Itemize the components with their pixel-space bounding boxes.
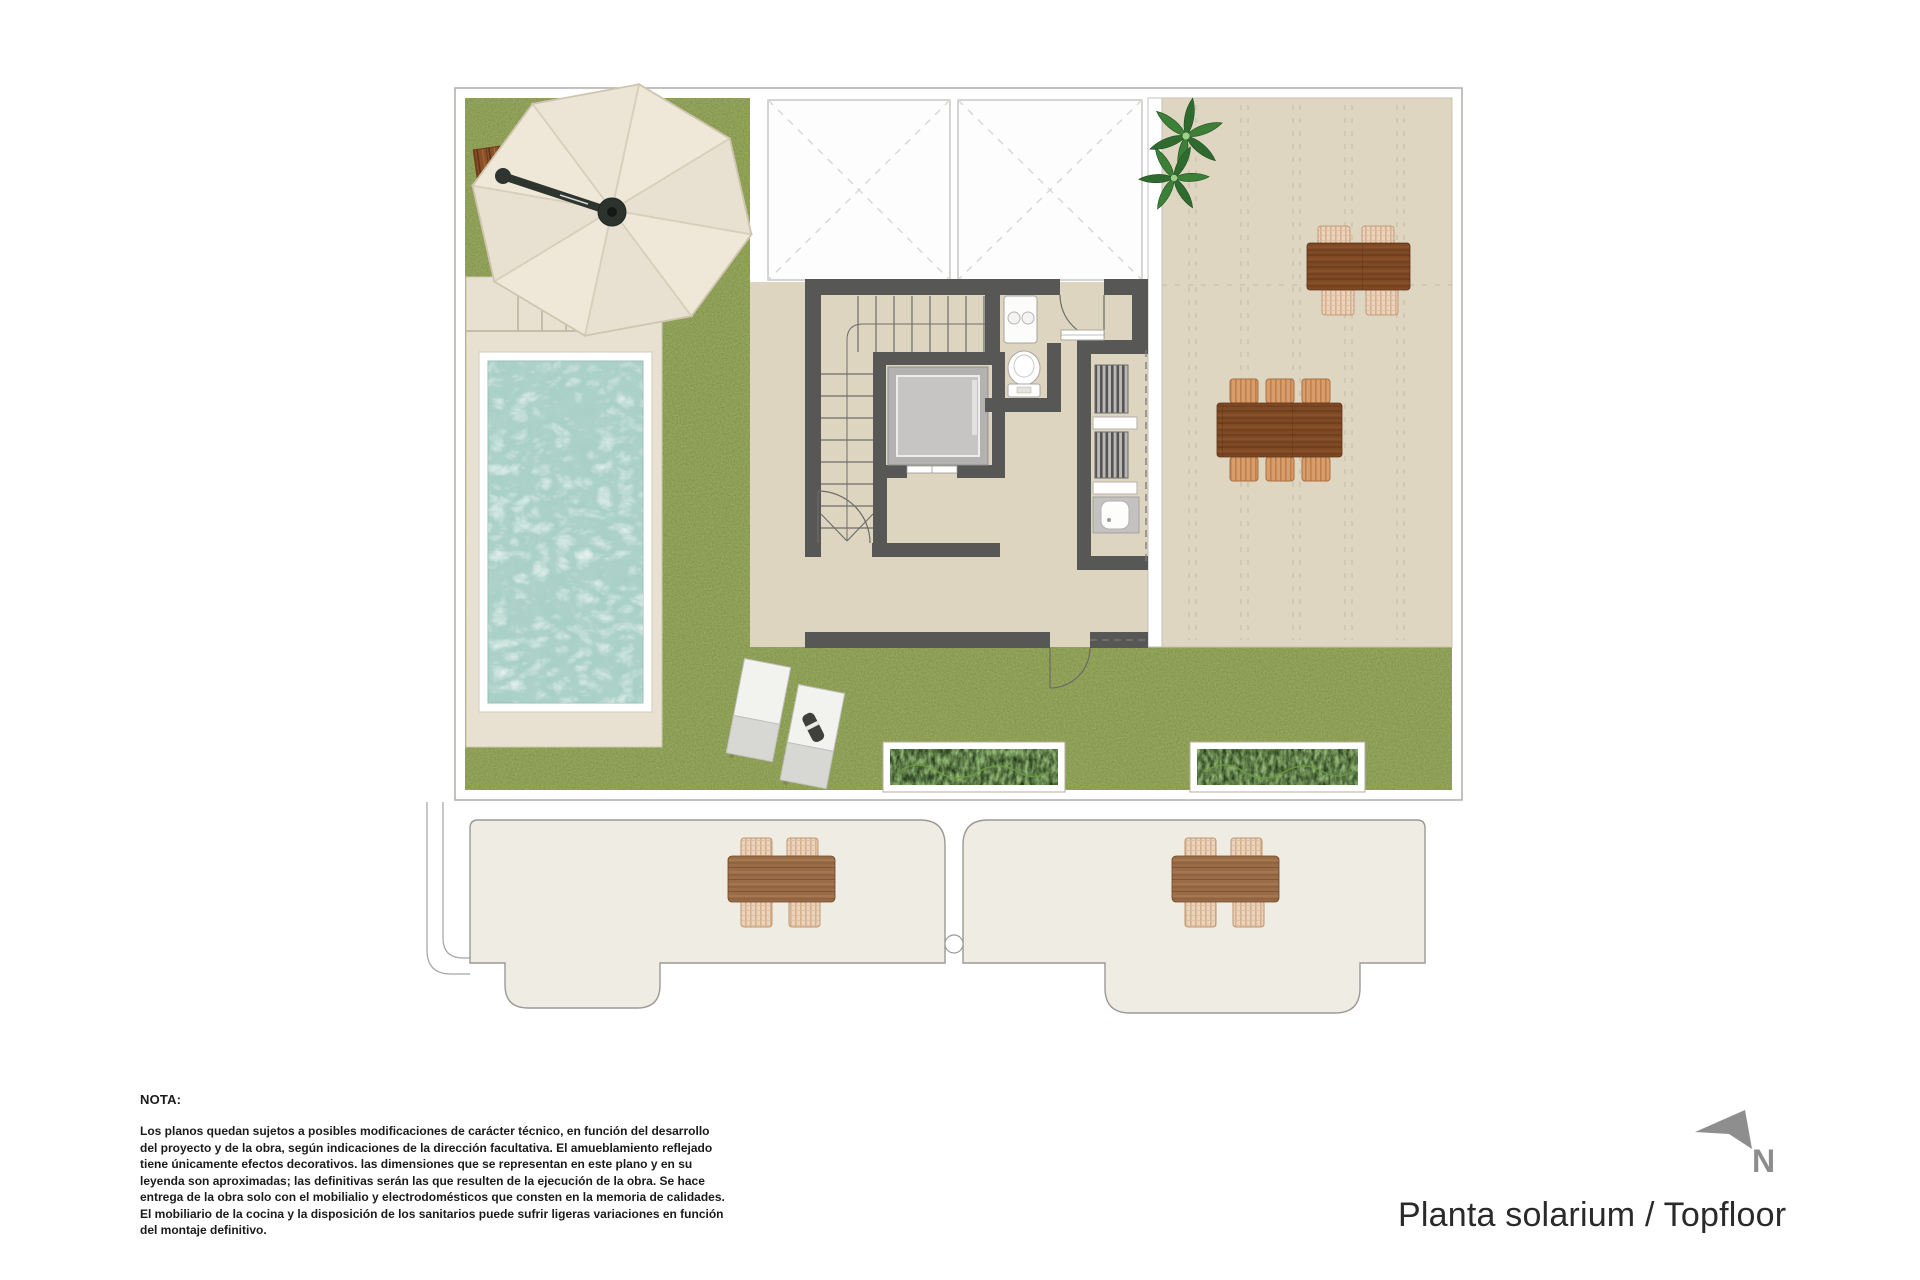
louver-unit-2: [1095, 432, 1128, 478]
chair: [789, 900, 820, 927]
chair: [1230, 379, 1258, 403]
elevator: [873, 352, 1005, 478]
louver-unit-1: [1095, 365, 1128, 413]
chair: [1230, 457, 1258, 481]
note-line: Los planos quedan sujetos a posibles mod…: [140, 1123, 700, 1140]
compass: N: [1695, 1110, 1775, 1179]
note-line: entrega de la obra solo con el mobiliali…: [140, 1189, 700, 1206]
note-line: del proyecto y de la obra, según indicac…: [140, 1140, 700, 1157]
table-top: [1217, 403, 1342, 457]
table-top: [1172, 856, 1279, 902]
note-line: tiene únicamente efectos decorativos. la…: [140, 1156, 700, 1173]
note-line: del montaje definitivo.: [140, 1222, 700, 1239]
dining-table-lower: [1217, 379, 1342, 481]
planter-1: [883, 742, 1065, 792]
skylight-left: [768, 100, 950, 280]
chair: [1266, 379, 1294, 403]
table-top: [728, 856, 835, 902]
solarium-block: [455, 84, 1462, 800]
chair: [1233, 900, 1264, 927]
planter-2: [1190, 742, 1365, 792]
note-line: leyenda son aproximadas; las definitivas…: [140, 1173, 700, 1190]
plan-note: NOTA: Los planos quedan sujetos a posibl…: [140, 1092, 700, 1239]
chair: [1322, 288, 1354, 315]
chair: [1302, 457, 1330, 481]
floorplan-drawing: N: [0, 0, 1920, 1280]
toilet-icon: [1008, 351, 1040, 397]
lower-terrace-left: [470, 820, 945, 1008]
pool: [479, 352, 652, 712]
table-top: [1307, 243, 1410, 290]
north-label: N: [1752, 1143, 1775, 1179]
floorplan-page: N NOTA: Los planos quedan sujetos a posi…: [0, 0, 1920, 1280]
side-wall: [427, 802, 470, 974]
note-line: El mobiliario de la cocina y la disposic…: [140, 1206, 700, 1223]
note-heading: NOTA:: [140, 1092, 700, 1107]
chair: [1302, 379, 1330, 403]
page-title: Planta solarium / Topfloor: [1398, 1196, 1818, 1235]
shelf-1: [1093, 417, 1137, 429]
divider-notch: [945, 935, 963, 953]
north-arrow-icon: [1695, 1110, 1752, 1149]
sink-icon: [1093, 497, 1139, 533]
chair: [1185, 900, 1216, 927]
chair: [1366, 288, 1398, 315]
skylight-right: [958, 100, 1142, 280]
chair: [1266, 457, 1294, 481]
cistern-icon: [1004, 296, 1037, 343]
chair: [741, 900, 772, 927]
lower-terraces: [427, 802, 1425, 1013]
shelf-2: [1093, 482, 1137, 494]
